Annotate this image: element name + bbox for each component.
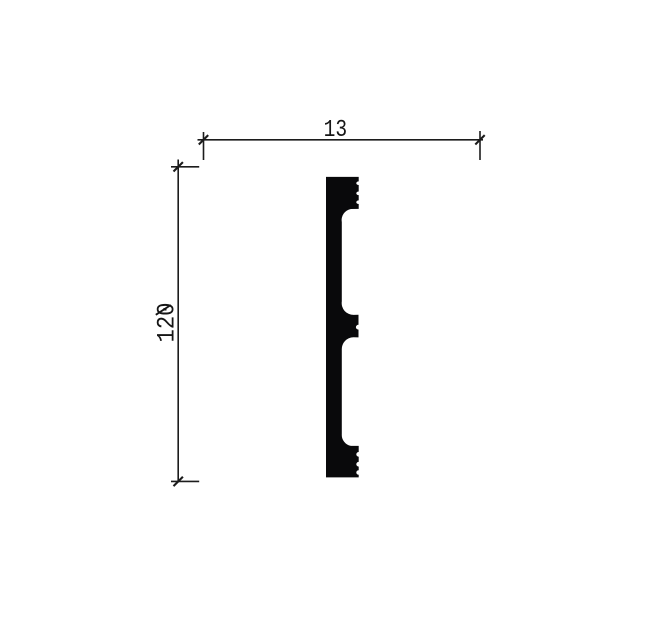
svg-text:13: 13 (324, 117, 348, 144)
